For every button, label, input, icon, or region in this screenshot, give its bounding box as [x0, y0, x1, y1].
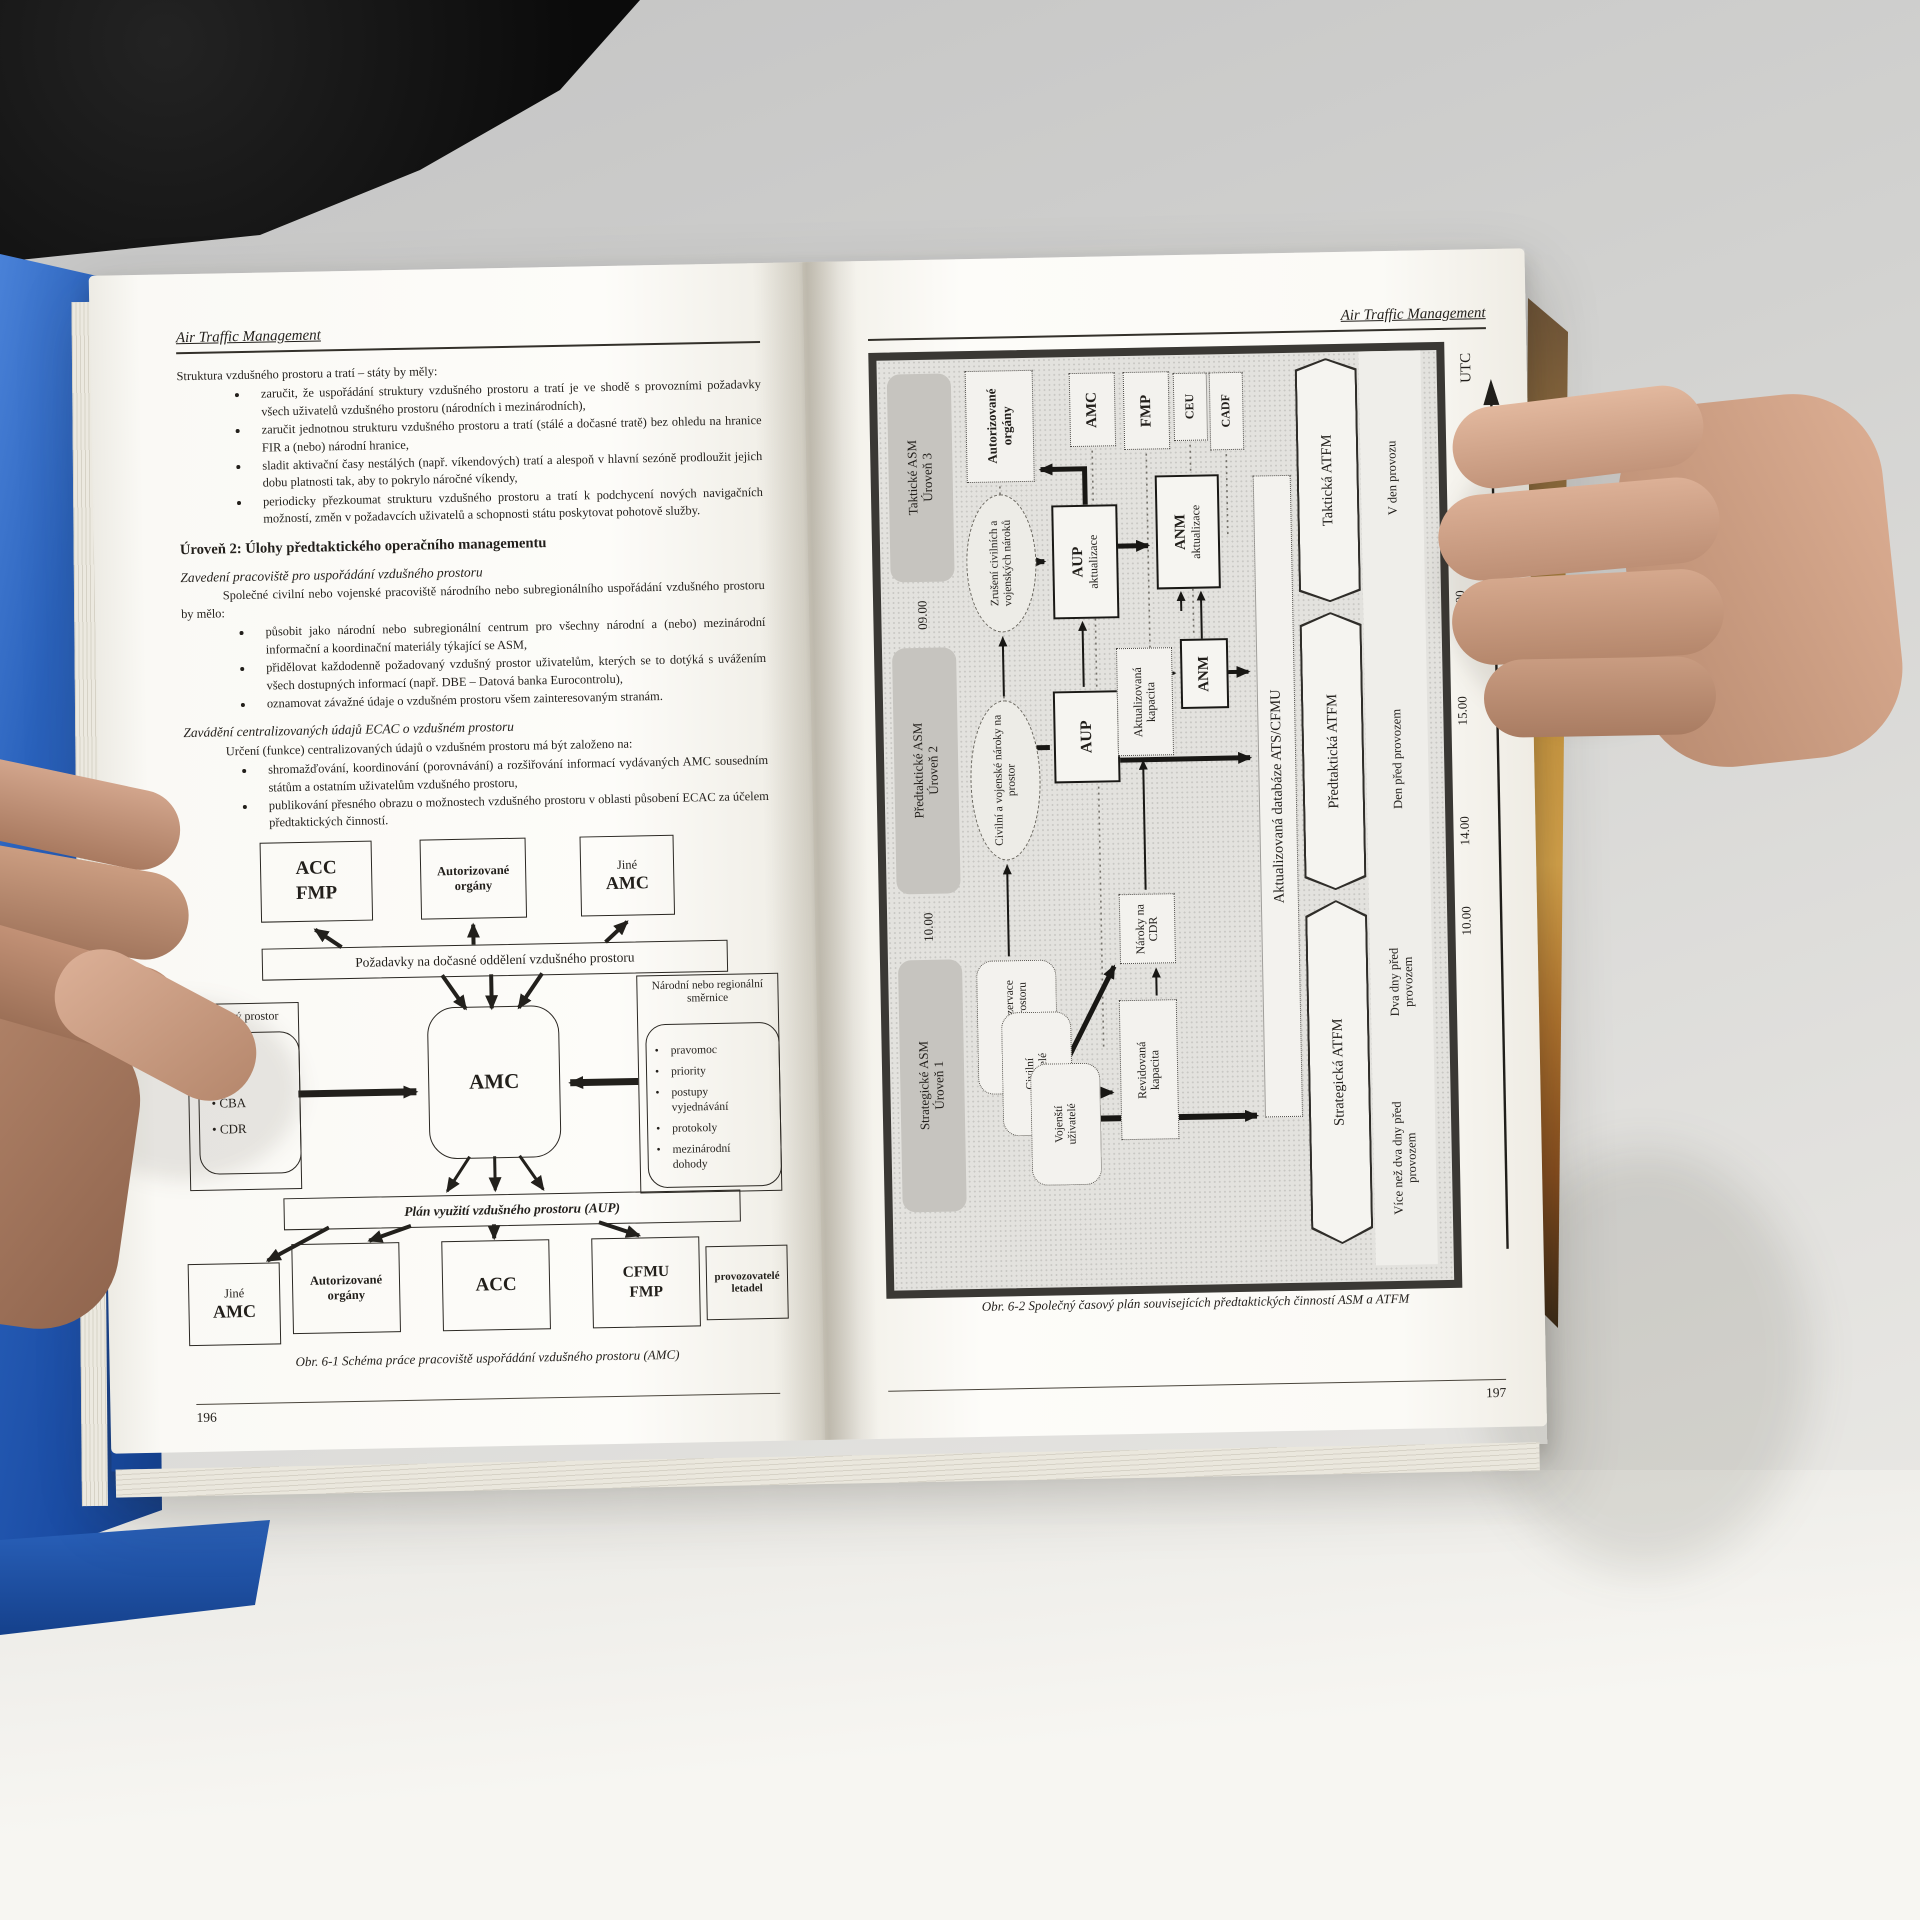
box-national-directives: Národní nebo regionální směrnice •pravom… [636, 973, 782, 1194]
time-1000: 10.00 [1445, 897, 1490, 944]
time-1500: 15.00 [1441, 687, 1486, 734]
figure-6-2: Taktické ASMÚroveň 3 09.00 Předtaktické … [868, 341, 1534, 1285]
box-other-amc-top: Jiné AMC [580, 835, 676, 917]
box-label: Jiné [617, 857, 637, 872]
banner-tactical-atfm: Taktická ATFM [1294, 358, 1361, 603]
box-aup: AUP [1053, 690, 1121, 783]
box-aircraft-operators: provozovatelé letadel [705, 1244, 788, 1320]
list-item: •priority [655, 1063, 706, 1079]
list-item: •protokoly [656, 1120, 717, 1136]
box-label: aktualizace [1188, 505, 1203, 559]
box-anm: ANM [1180, 638, 1229, 709]
box-cadf: CADF [1209, 372, 1244, 451]
figure2-frame: Taktické ASMÚroveň 3 09.00 Předtaktické … [868, 342, 1462, 1299]
banner-strategic-atfm: Strategická ATFM [1305, 899, 1374, 1244]
period-day-before: Den před provozem [1368, 650, 1426, 867]
box-label: ANM [1172, 514, 1189, 550]
time-1400: 14.00 [1443, 807, 1488, 854]
box-acc-fmp: ACC FMP [260, 840, 374, 922]
box-directives-items: •pravomoc •priority •postupy vyjednávání… [645, 1022, 782, 1189]
box-aup-update: AUPaktualizace [1051, 504, 1119, 619]
box-label: provozovatelé letadel [709, 1269, 785, 1294]
box-label: CFMU FMP [616, 1262, 677, 1302]
left-page: Air Traffic Management Struktura vzdušné… [89, 262, 825, 1453]
box-revised-capacity: Revidovaná kapacita [1119, 999, 1180, 1140]
open-book: Air Traffic Management Struktura vzdušné… [89, 248, 1548, 1471]
period-two-days-before: Dva dny před provozem [1373, 906, 1430, 1057]
page-number: 196 [196, 1410, 217, 1425]
box-authorized-bodies: Autorizované orgány [965, 370, 1035, 483]
bullet-list-3: shromažďování, koordinování (porovnávání… [184, 752, 769, 834]
right-page: Air Traffic Management [803, 248, 1547, 1440]
level-bar-pretactical: Předtaktické ASMÚroveň 2 [892, 647, 961, 894]
bullet-list-2: působit jako národní nebo subregionální … [181, 614, 767, 714]
level-number: Úroveň 2 [925, 746, 941, 795]
box-label: AMC [469, 1069, 520, 1095]
box-other-amc-bottom: Jiné AMC [188, 1262, 282, 1346]
box-authorized-bottom: Autorizované orgány [291, 1242, 401, 1334]
time-label-left-0900: 09.00 [891, 589, 956, 640]
box-amc-central: AMC [427, 1005, 562, 1160]
page-number: 197 [1486, 1385, 1507, 1400]
time-label-left-1000: 10.00 [897, 901, 962, 952]
box-cdr-claims: Nároky na CDR [1119, 893, 1176, 964]
level-number: Úroveň 1 [931, 1061, 947, 1110]
axis-utc-label: UTC [1444, 341, 1489, 394]
list-item: •postupy vyjednávání [655, 1084, 750, 1116]
box-label: Autorizované orgány [300, 1272, 393, 1304]
box-acc: ACC [441, 1239, 551, 1331]
right-hand-finger [1450, 567, 1726, 667]
box-cfmu-fmp: CFMU FMP [591, 1236, 701, 1328]
person-arm-sleeve [0, 0, 660, 280]
box-amc: AMC [1069, 372, 1116, 447]
box-updated-capacity: Aktualizovaná kapacita [1116, 647, 1174, 756]
left-page-body: Struktura vzdušného prostoru a tratí – s… [176, 357, 769, 834]
box-label: ACC FMP [287, 856, 346, 906]
right-hand-finger [1483, 656, 1716, 738]
bullet-list-1: zaručit, že uspořádání struktury vzdušné… [177, 376, 764, 529]
box-authorized-top: Autorizované orgány [420, 837, 528, 919]
box-label: AUP [1070, 546, 1087, 577]
box-label: AMC [606, 872, 649, 894]
box-label: ACC [475, 1274, 517, 1297]
running-header-left: Air Traffic Management [176, 319, 760, 354]
box-label: Národní nebo regionální směrnice [646, 978, 769, 1008]
period-day-of-operation: V den provozu [1363, 386, 1420, 569]
box-ceu: CEU [1173, 372, 1208, 441]
level-bar-strategic: Strategické ASMÚroveň 1 [898, 959, 967, 1212]
bar-label: Plán využití vzdušného prostoru (AUP) [404, 1200, 620, 1220]
level-bar-tactical: Taktické ASMÚroveň 3 [887, 373, 955, 582]
box-anm-update: ANMaktualizace [1155, 474, 1221, 589]
level-number: Úroveň 3 [919, 453, 935, 502]
box-label: Autorizované orgány [428, 863, 519, 895]
box-label: aktualizace [1085, 535, 1100, 589]
period-more-than-two-days: Více než dva dny před provozem [1376, 1072, 1433, 1243]
box-label: AMC [213, 1301, 256, 1323]
running-header-right: Air Traffic Management [868, 305, 1486, 341]
banner-pretactical-atfm: Předtaktická ATFM [1299, 612, 1366, 891]
banner-label: Taktická ATFM [1319, 434, 1337, 526]
box-label: Jiné [224, 1286, 244, 1301]
level-name: Předtaktické ASM [910, 723, 927, 819]
banner-label: Strategická ATFM [1330, 1018, 1348, 1126]
bar-label: Požadavky na dočasné oddělení vzdušného … [355, 949, 635, 970]
list-item: •mezinárodní dohody [656, 1141, 751, 1173]
banner-label: Předtaktická ATFM [1324, 694, 1343, 809]
box-fmp: FMP [1123, 371, 1170, 450]
box-military-users: Vojenští uživatelé [1030, 1063, 1102, 1186]
list-item: •pravomoc [654, 1042, 717, 1058]
section-heading: Úroveň 2: Úlohy předtaktického operačníh… [180, 531, 764, 560]
